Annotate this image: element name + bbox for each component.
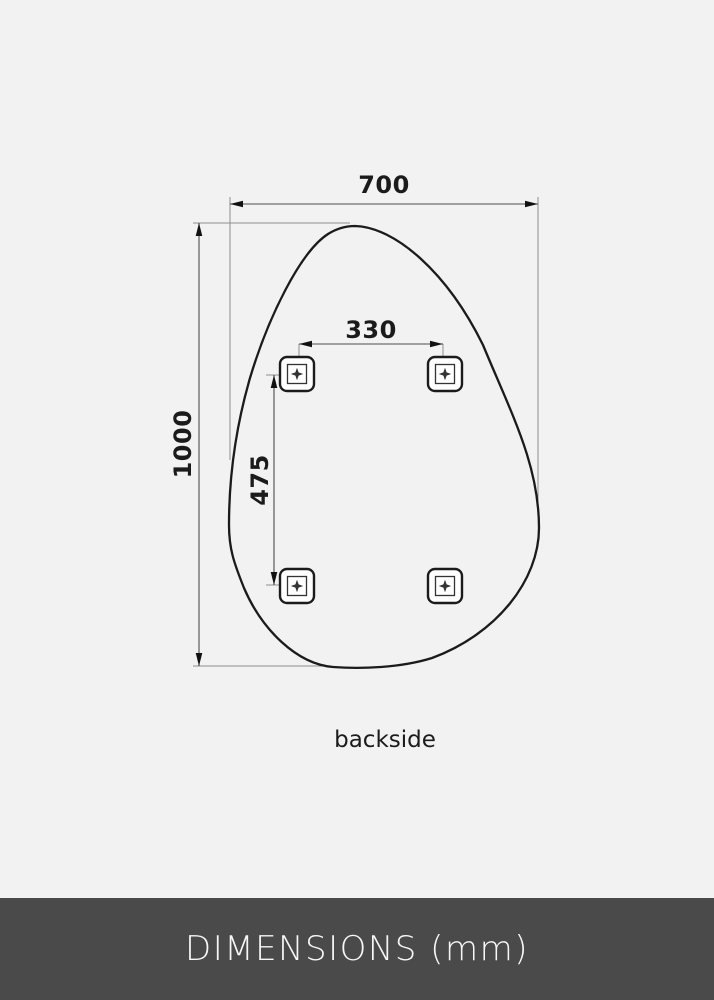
mirror-outline xyxy=(229,226,539,668)
mount-bracket-top-left xyxy=(280,357,314,391)
mount-bracket-bottom-right xyxy=(428,569,462,603)
mount-height-dimension-label: 475 xyxy=(246,454,274,506)
mount-bracket-bottom-left xyxy=(280,569,314,603)
arrow-up-icon xyxy=(196,223,203,236)
footer-title: DIMENSIONS (mm) xyxy=(185,929,529,969)
mount-width-dimension-label: 330 xyxy=(345,316,397,344)
dimension-diagram-page: 700 1000 330 475 backside DIMENSIONS (mm… xyxy=(0,0,714,1000)
backside-caption: backside xyxy=(334,727,436,753)
arrow-down-icon xyxy=(196,653,203,666)
mirror-dimension-drawing xyxy=(0,0,714,1000)
arrow-left-icon xyxy=(230,201,243,208)
mount-bracket-top-right xyxy=(428,357,462,391)
width-dimension-label: 700 xyxy=(358,171,410,199)
footer-bar: DIMENSIONS (mm) xyxy=(0,898,714,1000)
height-dimension-label: 1000 xyxy=(169,410,197,479)
arrow-right-icon xyxy=(525,201,538,208)
